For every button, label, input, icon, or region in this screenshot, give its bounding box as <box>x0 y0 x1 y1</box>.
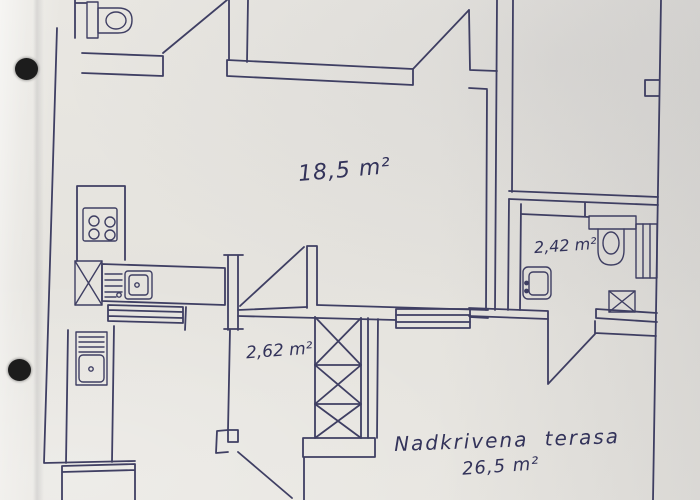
toilet-icon <box>87 2 132 38</box>
hall-walls <box>216 246 378 500</box>
window-icon <box>636 224 657 278</box>
terrace-walls <box>548 319 656 384</box>
hatched-shaft-icon <box>315 317 361 438</box>
top-walls <box>75 0 513 310</box>
door-leaf <box>238 452 292 498</box>
kitchen-walls <box>66 186 225 463</box>
crossed-box-icon <box>75 261 102 305</box>
south-wall <box>238 305 488 328</box>
stove-icon <box>83 208 117 241</box>
window-icon <box>396 309 470 328</box>
sink-icon <box>76 332 107 385</box>
bathroom-walls <box>469 191 658 322</box>
floor-plan-photo: 18,5 m² 2,42 m² 2,62 m² Nadkrivena teras… <box>0 0 700 500</box>
bathroom-area-label: 2,42 m² <box>534 236 598 256</box>
hallway-area-label: 2,62 m² <box>245 341 313 363</box>
sink-icon <box>105 271 152 299</box>
washbasin-icon <box>523 267 551 299</box>
crossed-box-icon <box>609 291 635 312</box>
